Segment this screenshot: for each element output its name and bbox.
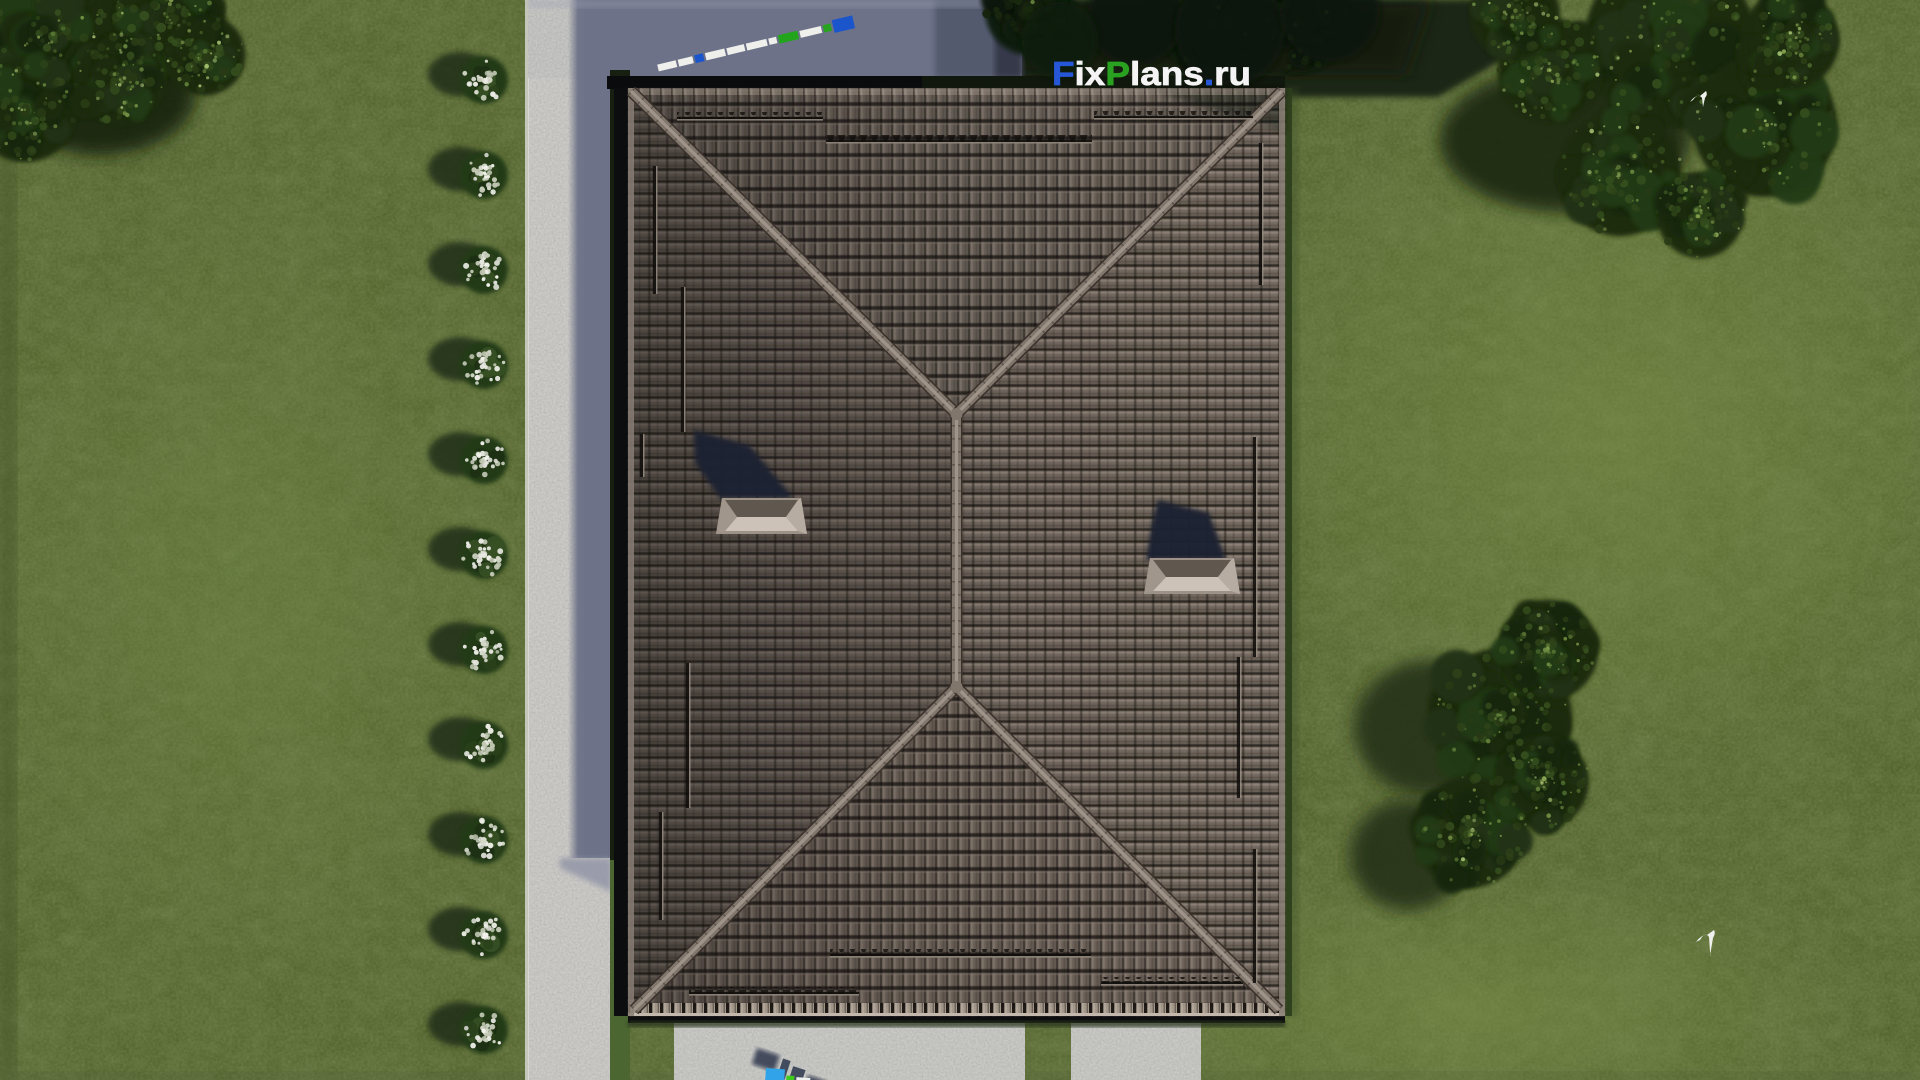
- svg-text:FixPlans.ru: FixPlans.ru: [1052, 55, 1251, 92]
